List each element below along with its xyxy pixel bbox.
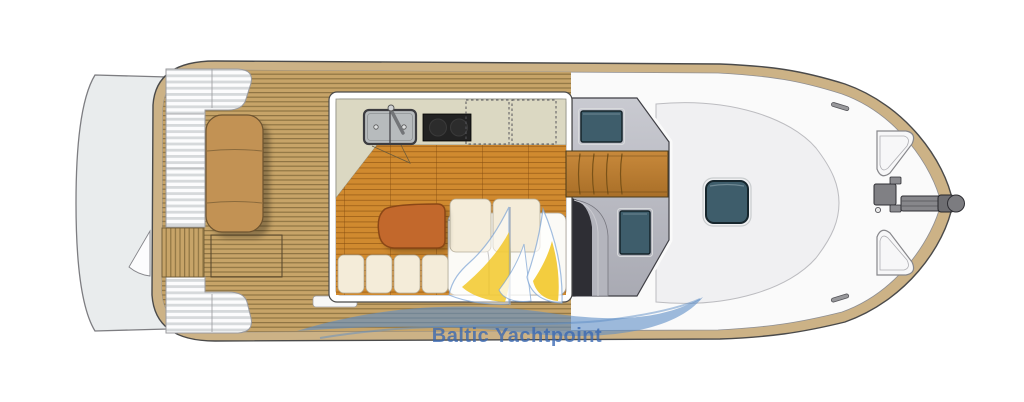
yacht-deck-plan: Baltic Yachtpoint: [0, 0, 1024, 402]
foredeck-hatch: [703, 178, 751, 226]
plan-drawing: [0, 0, 1024, 402]
anchor-icon: [901, 195, 965, 212]
companionway-step-pad: [566, 151, 668, 197]
roof-hatch-fwd: [618, 209, 653, 257]
transom-gate: [162, 228, 204, 277]
galley-sink-icon: [364, 105, 416, 144]
cockpit-sunpad: [206, 115, 270, 238]
salon-table: [378, 204, 449, 252]
stove-icon: [423, 114, 471, 141]
roof-hatch-aft: [579, 109, 625, 145]
